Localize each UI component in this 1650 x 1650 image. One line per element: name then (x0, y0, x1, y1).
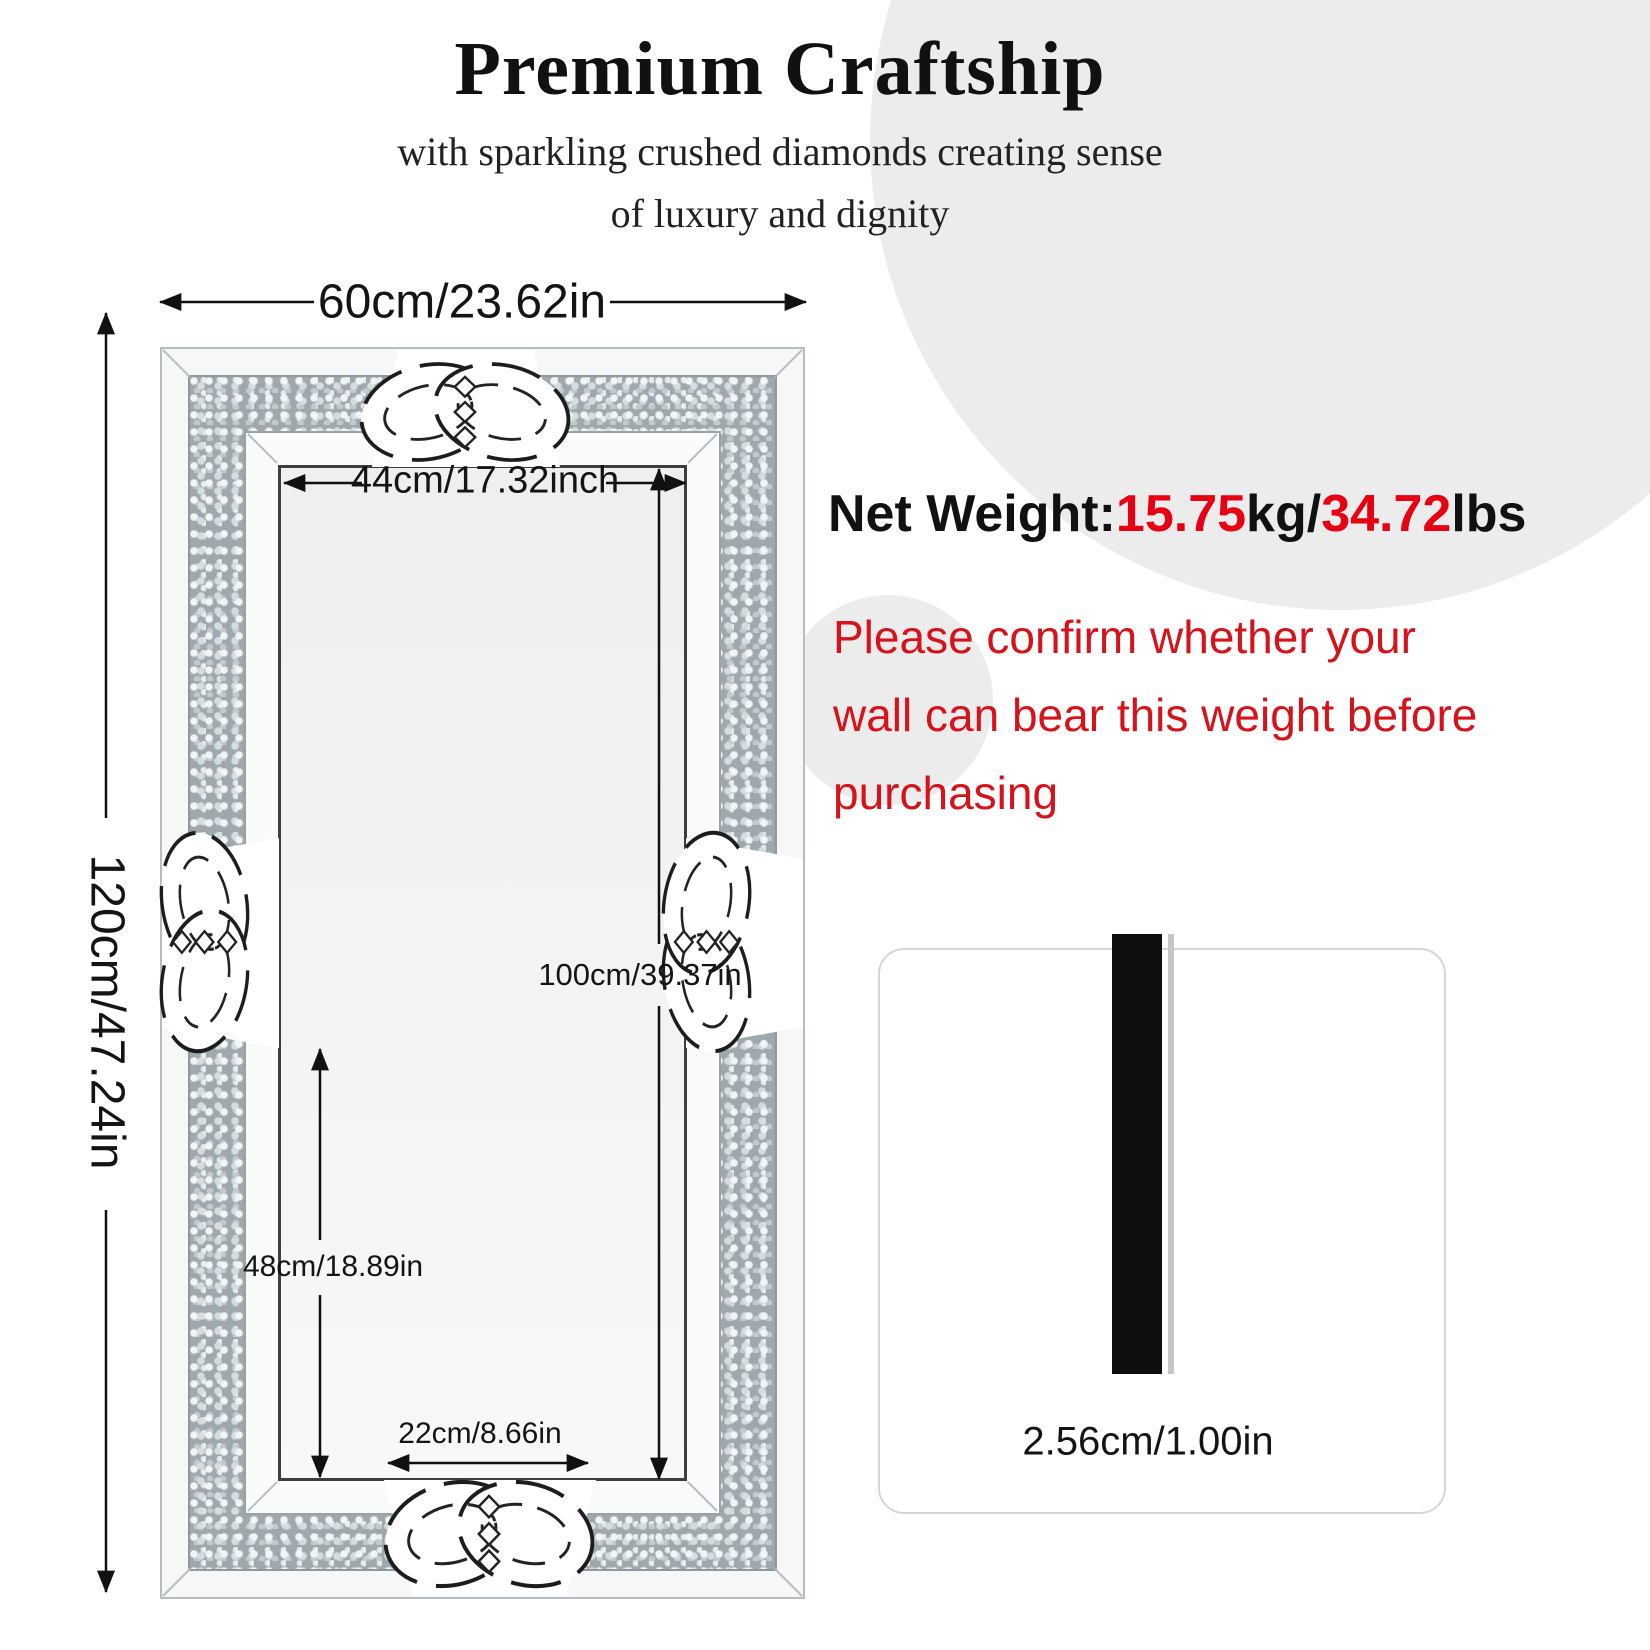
lower-height-label: 48cm/18.89in (243, 1250, 423, 1284)
warning-line-1: Please confirm whether your (833, 598, 1613, 676)
subtitle-line-2: of luxury and dignity (0, 190, 1560, 237)
celtic-knot-right-icon (644, 820, 770, 1065)
mirror-side-view-edge (1168, 934, 1174, 1374)
page-title: Premium Craftship (0, 26, 1560, 113)
thickness-label: 2.56cm/1.00in (1022, 1420, 1273, 1465)
inner-height-label: 100cm/39.37in (538, 957, 741, 993)
product-infographic: Premium Craftship with sparkling crushed… (0, 0, 1650, 1650)
wall-weight-warning: Please confirm whether your wall can bea… (833, 598, 1613, 832)
mirror-side-view-bar (1112, 934, 1162, 1374)
celtic-knot-bottom-icon (373, 1458, 605, 1610)
knot-width-label: 22cm/8.66in (398, 1417, 561, 1451)
warning-line-3: purchasing (833, 754, 1613, 832)
celtic-knot-left-icon (142, 820, 268, 1065)
subtitle-line-1: with sparkling crushed diamonds creating… (0, 128, 1560, 175)
net-weight-line: Net Weight:15.75kg/34.72lbs (828, 484, 1526, 544)
outer-height-label: 120cm/47.24in (80, 855, 135, 1170)
warning-line-2: wall can bear this weight before (833, 676, 1613, 754)
net-weight-lbs-value: 34.72 (1321, 485, 1451, 543)
net-weight-kg-value: 15.75 (1116, 485, 1246, 543)
net-weight-kg-unit: kg/ (1246, 485, 1321, 543)
outer-width-label: 60cm/23.62in (318, 275, 606, 330)
net-weight-lbs-unit: lbs (1451, 485, 1526, 543)
inner-width-label: 44cm/17.32inch (351, 460, 619, 503)
net-weight-label: Net Weight: (828, 485, 1116, 543)
